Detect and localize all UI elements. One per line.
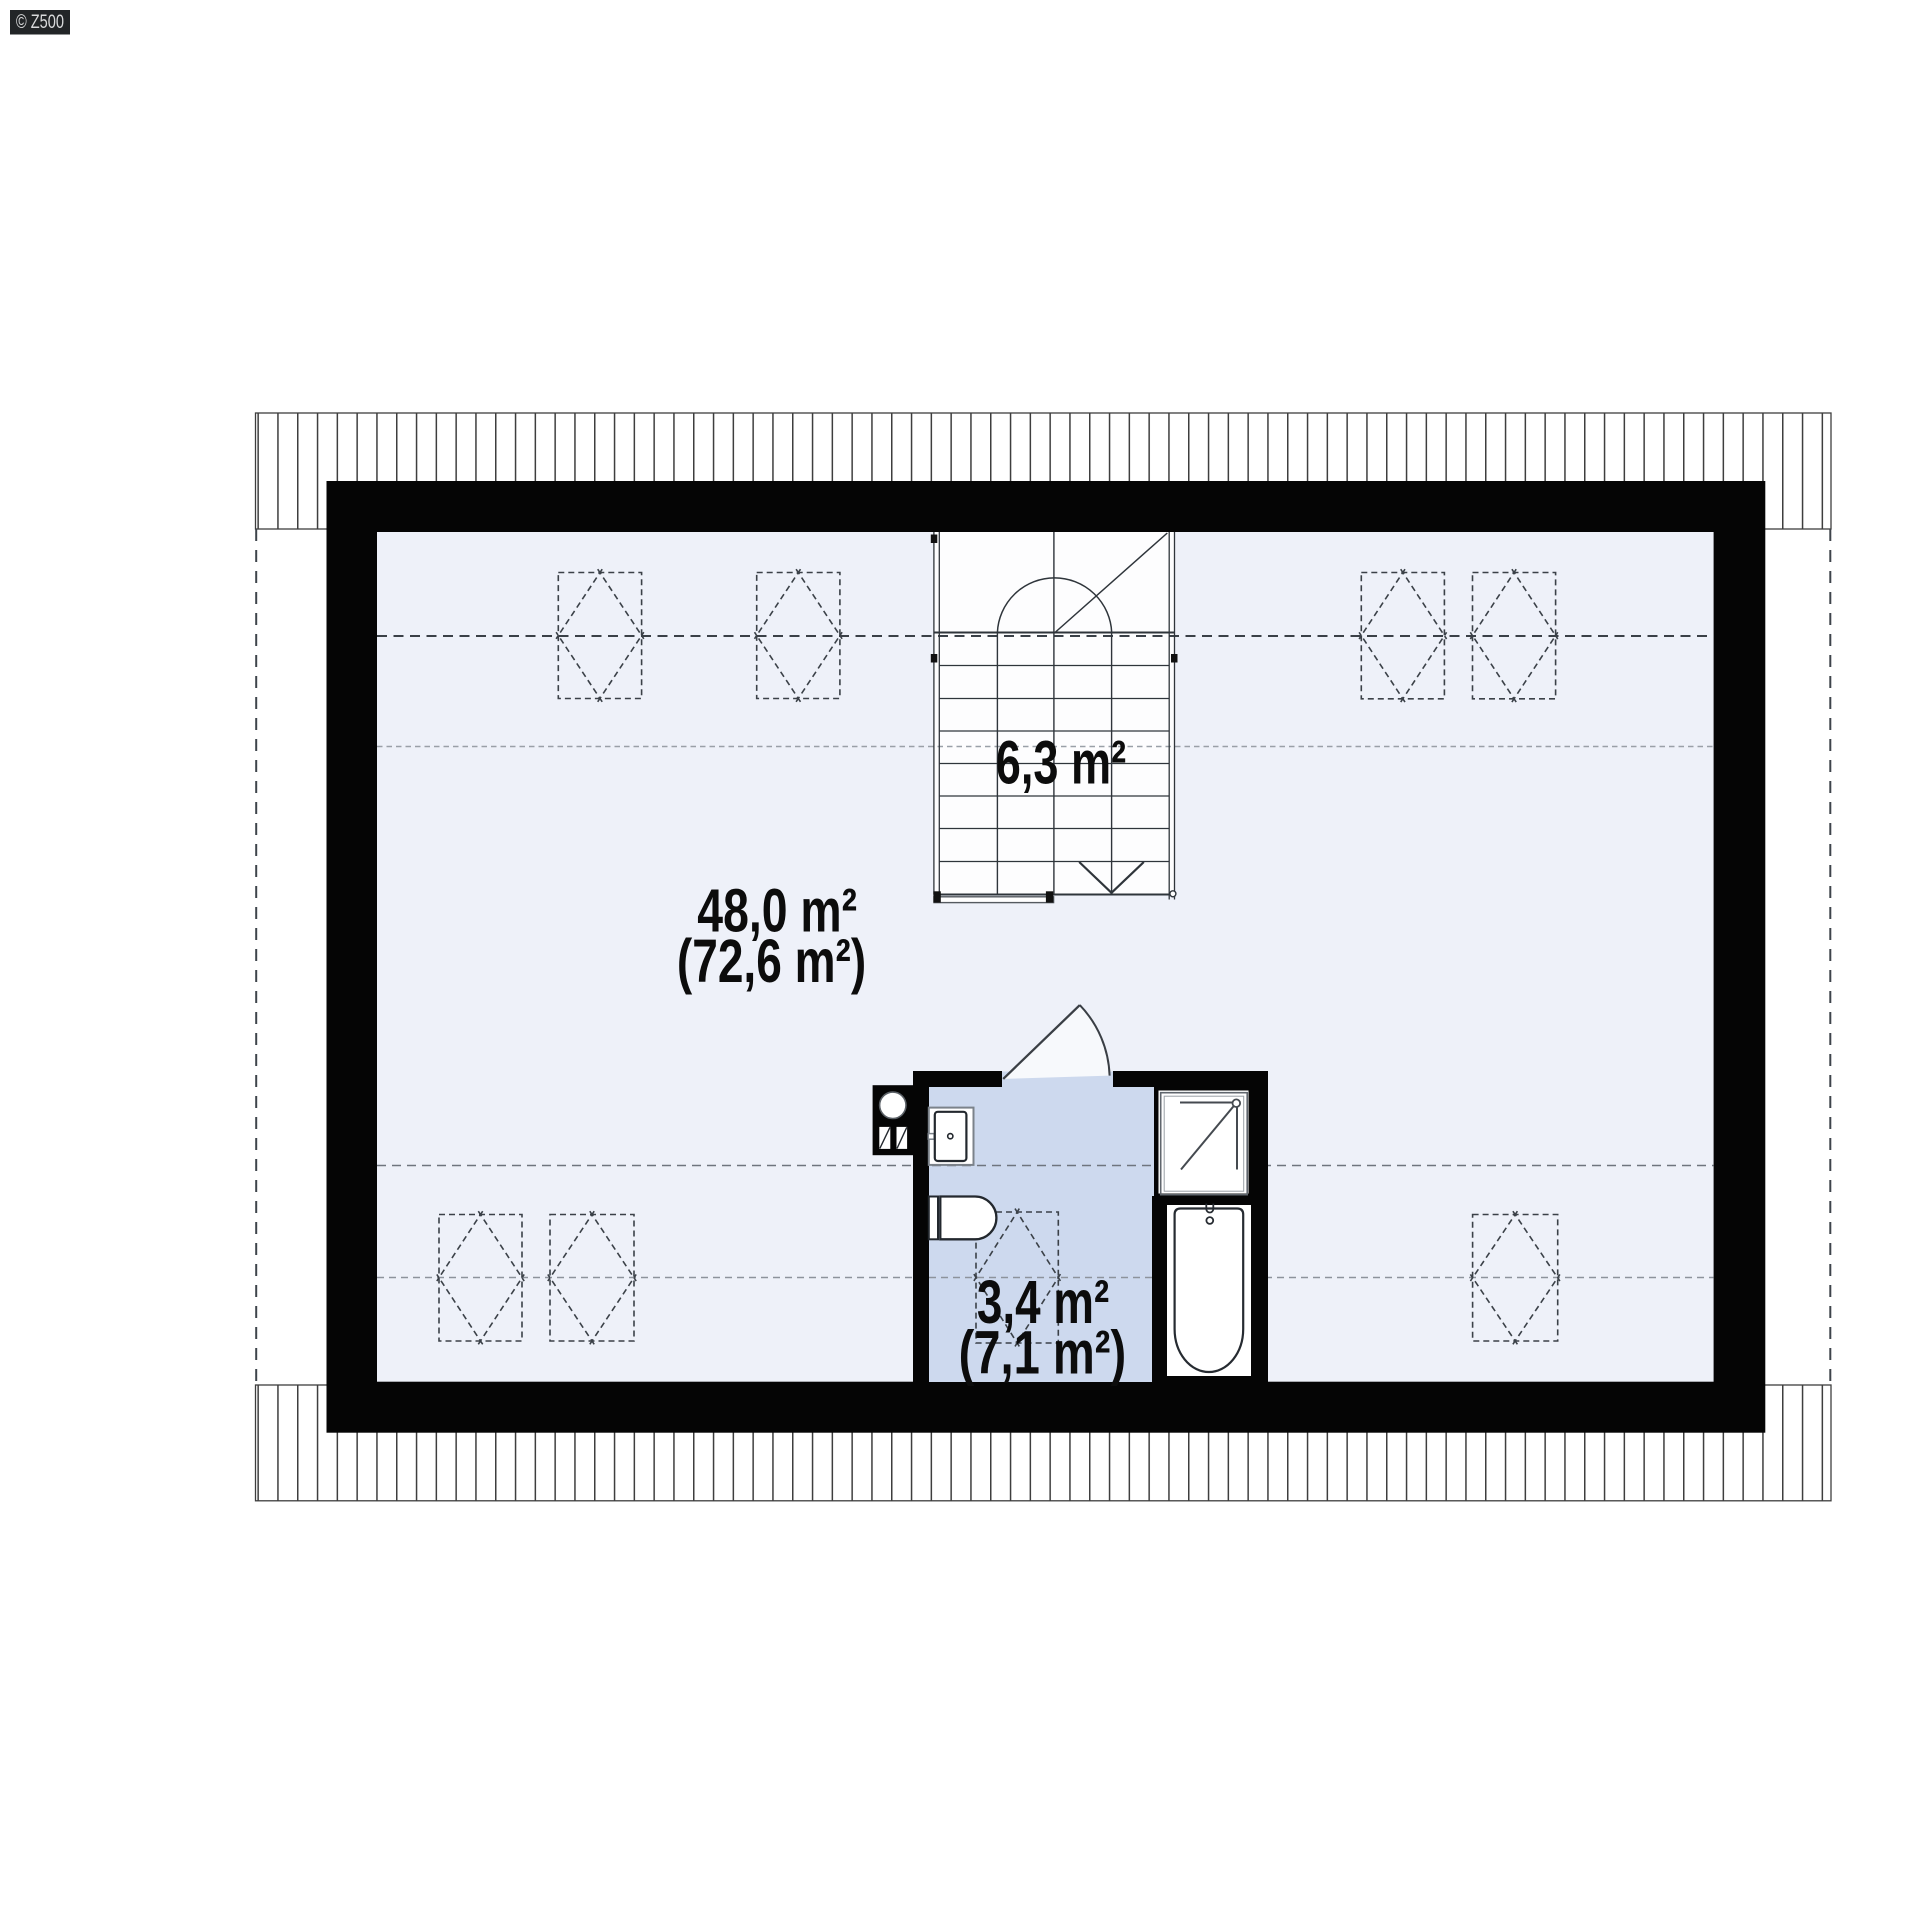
svg-text:(72,6 m²): (72,6 m²)	[677, 927, 866, 996]
svg-text:(7,1 m²): (7,1 m²)	[959, 1318, 1127, 1387]
svg-text:© Z500: © Z500	[16, 12, 64, 33]
svg-text:6,3 m²: 6,3 m²	[996, 729, 1126, 798]
